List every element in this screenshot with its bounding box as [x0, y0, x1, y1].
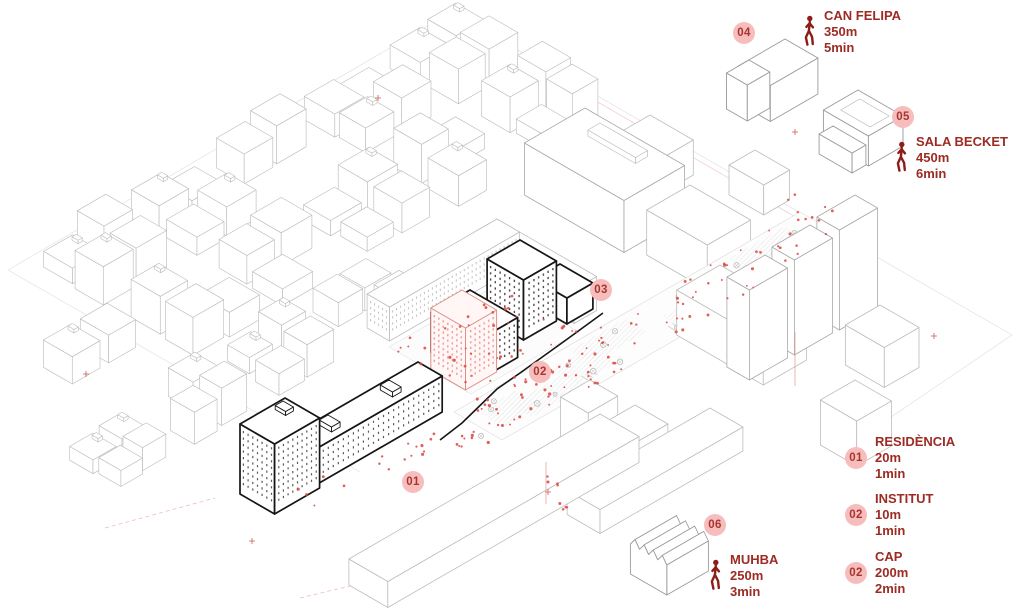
map-marker-02: 02	[529, 361, 551, 383]
map-marker-01: 01	[402, 471, 424, 493]
poi-distance: 350m	[824, 24, 901, 40]
legend-name: RESIDÈNCIA	[875, 434, 955, 450]
poi-label-sala-becket: SALA BECKET 450m 6min	[894, 134, 1008, 182]
legend-walk-time: 1min	[875, 466, 955, 482]
walking-person-icon	[708, 558, 723, 594]
legend-walk-time: 2min	[875, 581, 908, 597]
legend-marker-01: 01	[845, 447, 867, 469]
legend-item-residencia: 01 RESIDÈNCIA 20m 1min	[845, 434, 955, 482]
legend-name: INSTITUT	[875, 491, 934, 507]
poi-distance: 250m	[730, 568, 778, 584]
poi-walk-time: 3min	[730, 584, 778, 600]
legend-walk-time: 1min	[875, 523, 934, 539]
map-marker-05: 05	[892, 106, 914, 128]
legend-item-institut: 02 INSTITUT 10m 1min	[845, 491, 934, 539]
poi-label-muhba: MUHBA 250m 3min	[708, 552, 778, 600]
walking-person-icon	[802, 14, 817, 50]
poi-label-can-felipa: CAN FELIPA 350m 5min	[802, 8, 901, 56]
map-marker-06: 06	[704, 514, 726, 536]
legend-distance: 200m	[875, 565, 908, 581]
map-marker-03: 03	[590, 279, 612, 301]
poi-name: MUHBA	[730, 552, 778, 568]
legend-marker-02: 02	[845, 504, 867, 526]
legend-name: CAP	[875, 549, 908, 565]
legend-distance: 10m	[875, 507, 934, 523]
poi-walk-time: 6min	[916, 166, 1008, 182]
legend-distance: 20m	[875, 450, 955, 466]
walking-person-icon	[894, 140, 909, 176]
poi-distance: 450m	[916, 150, 1008, 166]
poi-name: SALA BECKET	[916, 134, 1008, 150]
map-marker-04: 04	[733, 22, 755, 44]
legend-item-cap: 02 CAP 200m 2min	[845, 549, 908, 597]
poi-name: CAN FELIPA	[824, 8, 901, 24]
poi-walk-time: 5min	[824, 40, 901, 56]
legend-marker-02b: 02	[845, 562, 867, 584]
